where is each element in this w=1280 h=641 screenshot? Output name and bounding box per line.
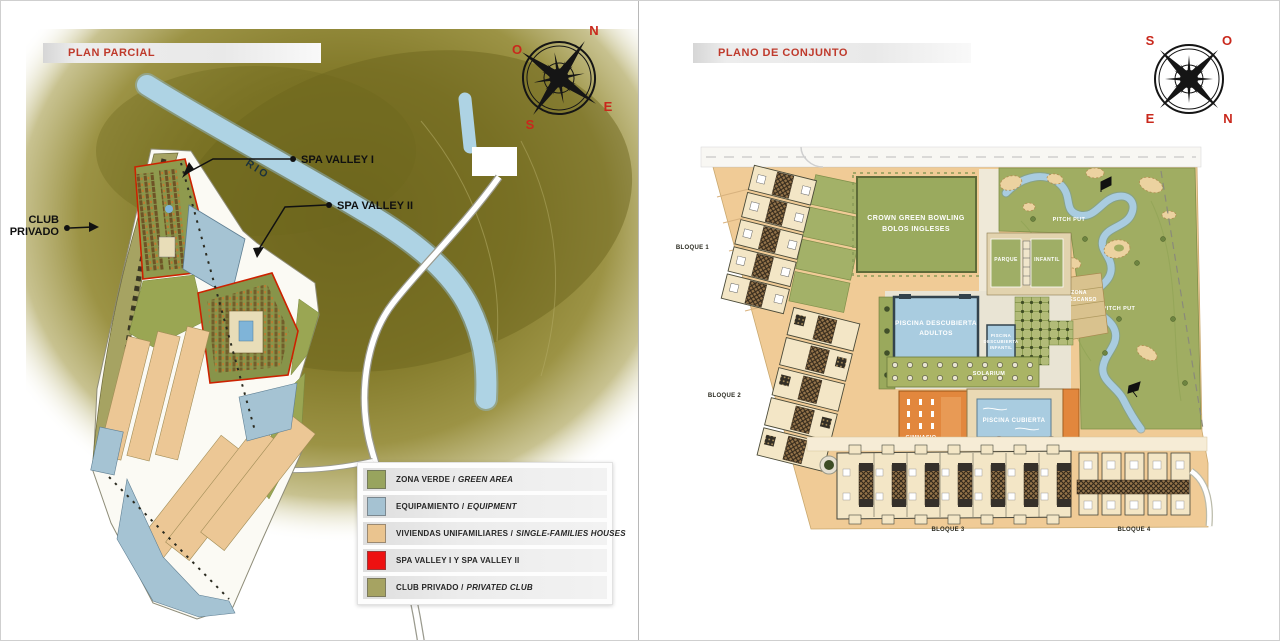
infantil-label: INFANTIL: [1034, 257, 1060, 263]
spa1-pool: [165, 205, 173, 213]
bloque-2-label: BLOQUE 2: [708, 393, 741, 399]
left-panel-title: PLAN PARCIAL: [68, 47, 155, 59]
piscina-cubierta-label: PISCINA CUBIERTA: [983, 418, 1046, 424]
spa2-pool: [239, 321, 253, 341]
compass-letter-o: O: [512, 42, 522, 57]
legend-swatch-tan: [367, 524, 386, 543]
piscina-descubierta-infantil: PISCINA DESCUBIERTA INFANTIL: [983, 325, 1018, 359]
garden-grid-arm: [1049, 321, 1073, 345]
legend-swatch-green: [367, 470, 386, 489]
solarium: SOLARIUM: [887, 357, 1039, 387]
parque-infantil: PARQUE INFANTIL: [987, 233, 1071, 295]
bloque-1-label: BLOQUE 1: [676, 245, 709, 251]
garden-grid: [1015, 297, 1049, 365]
piscina-infantil-label-line2: DESCUBIERTA: [983, 339, 1018, 344]
panel-divider: [638, 1, 639, 641]
club-privado-label-line2: PRIVADO: [10, 226, 60, 238]
brochure-page: RIO SPA VALLEY I SPA VALLEY II CLUB PRIV…: [0, 0, 1280, 641]
bloque-3-label: BLOQUE 3: [931, 527, 964, 533]
compass-letter-e: E: [1146, 111, 1155, 126]
left-title-bar: PLAN PARCIAL: [43, 43, 321, 63]
piscina-descubierta-adultos: PISCINA DESCUBIERTA ADULTOS: [894, 294, 978, 364]
legend-swatch-khaki: [367, 578, 386, 597]
spa-valley-1-label: SPA VALLEY I: [301, 154, 374, 166]
piscina-infantil-label-line3: INFANTIL: [990, 345, 1013, 350]
compass-letter-o: O: [1222, 33, 1232, 48]
bowling-label-line1: CROWN GREEN BOWLING: [867, 215, 965, 222]
bunker-hole: [1114, 245, 1124, 252]
bowling-green: CROWN GREEN BOWLING BOLOS INGLESES: [853, 173, 980, 276]
compass-letter-n: N: [589, 23, 598, 38]
legend-label-en: PRIVATED CLUB: [467, 583, 533, 592]
bloque-4-buildings: [1077, 453, 1190, 515]
legend-label: EQUIPAMIENTO /: [396, 502, 464, 511]
legend-row-equipamiento: EQUIPAMIENTO /EQUIPMENT: [363, 495, 607, 518]
piscina-adultos-label-line1: PISCINA DESCUBIERTA: [895, 320, 977, 327]
legend-row-zona-verde: ZONA VERDE /GREEN AREA: [363, 468, 607, 491]
spa-valley-2-label: SPA VALLEY II: [337, 200, 413, 212]
legend-label-en: SINGLE-FAMILIES HOUSES: [516, 529, 626, 538]
legend-label: ZONA VERDE /: [396, 475, 455, 484]
compass-star: [1155, 45, 1223, 113]
legend-label-en: EQUIPMENT: [467, 502, 516, 511]
legend-row-club-privado: CLUB PRIVADO /PRIVATED CLUB: [363, 576, 607, 599]
internal-road: [807, 437, 1207, 451]
bowling-label-line2: BOLOS INGLESES: [882, 226, 950, 233]
pitch-put-label-1: PITCH PUT: [1053, 217, 1086, 223]
bridge-box: [472, 147, 517, 176]
plan-parcial-panel: RIO SPA VALLEY I SPA VALLEY II CLUB PRIV…: [1, 1, 638, 641]
legend-row-spa-valley: SPA VALLEY I Y SPA VALLEY II: [363, 549, 607, 572]
access-road-top: [701, 147, 1201, 167]
solarium-label: SOLARIUM: [973, 371, 1006, 377]
piscina-infantil-label-line1: PISCINA: [991, 333, 1011, 338]
bloque-4-label: BLOQUE 4: [1117, 527, 1150, 533]
club-privado-label-line1: CLUB: [28, 214, 59, 226]
bloque-3-buildings: [837, 445, 1071, 524]
legend-label: SPA VALLEY I Y SPA VALLEY II: [396, 556, 519, 565]
roundabout: [820, 456, 838, 474]
right-panel-title: PLANO DE CONJUNTO: [718, 47, 848, 59]
legend-label: VIVIENDAS UNIFAMILIARES /: [396, 529, 513, 538]
zona-descanso-label-line1: ZONA: [1071, 290, 1087, 296]
pitch-put-label-2: PITCH PUT: [1103, 306, 1136, 312]
legend-label-en: GREEN AREA: [458, 475, 513, 484]
compass-letter-s: S: [526, 117, 535, 132]
compass-letter-n: N: [1223, 111, 1232, 126]
compass-rose-left: O N S E: [498, 18, 622, 138]
map-legend: ZONA VERDE /GREEN AREA EQUIPAMIENTO /EQU…: [357, 462, 613, 605]
compass-star: [517, 36, 600, 119]
legend-swatch-blue: [367, 497, 386, 516]
right-title-bar: PLANO DE CONJUNTO: [693, 43, 971, 63]
river-branch: [465, 99, 470, 147]
plano-conjunto-panel: CROWN GREEN BOWLING BOLOS INGLESES: [638, 1, 1280, 641]
compass-rose-right: S O E N: [1136, 26, 1246, 132]
piscina-adultos-label-line2: ADULTOS: [919, 330, 953, 337]
legend-row-viviendas: VIVIENDAS UNIFAMILIARES /SINGLE-FAMILIES…: [363, 522, 607, 545]
legend-label: CLUB PRIVADO /: [396, 583, 464, 592]
compass-letter-e: E: [604, 99, 613, 114]
compass-letter-s: S: [1146, 33, 1155, 48]
parque-label: PARQUE: [994, 257, 1018, 263]
legend-swatch-red: [367, 551, 386, 570]
